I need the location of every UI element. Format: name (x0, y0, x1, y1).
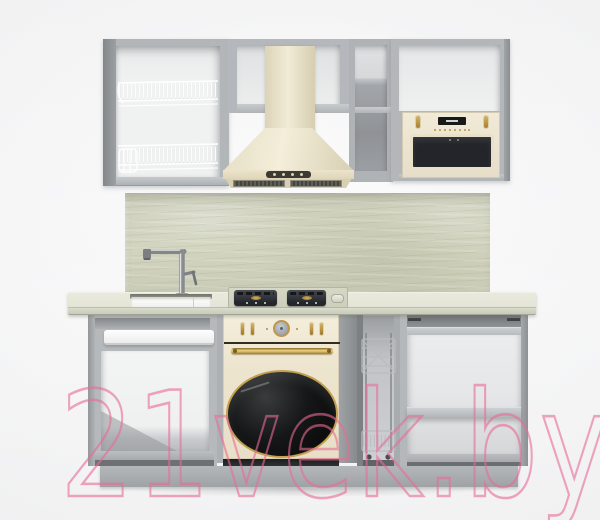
burner-cap (302, 296, 312, 300)
cabinet-top-shadow (95, 318, 210, 329)
grease-filter (290, 180, 342, 187)
microwave-buttons (434, 129, 470, 132)
sink-divider (193, 297, 194, 307)
dish-drying-racks (116, 46, 220, 177)
burner-cap (251, 296, 261, 300)
hood-filter-section (223, 179, 354, 188)
cabinet-side-panel (521, 313, 528, 466)
cabinet-shelf (407, 407, 521, 417)
drawer-rail (408, 318, 421, 321)
gas-burner-right (287, 290, 326, 306)
cabinet-bottom-edge (116, 177, 229, 186)
oven-knob (310, 323, 313, 335)
range-hood (223, 128, 354, 188)
floor-shadow (70, 485, 540, 501)
oven-door (226, 357, 338, 458)
cabinet-bottom-board (95, 451, 214, 460)
burner-grate (237, 292, 274, 295)
microwave-display (438, 117, 466, 125)
burner-detail (297, 302, 299, 304)
oven-knob (251, 323, 254, 335)
oven-indicator (296, 328, 298, 330)
built-in-microwave (402, 112, 500, 178)
sink-front-panel (104, 330, 214, 345)
oven-trim-line (224, 342, 340, 344)
oven-cabinet (217, 313, 357, 478)
cabinet-shelf (355, 107, 393, 113)
cooktop-control (331, 294, 344, 303)
built-in-oven (223, 314, 339, 459)
oven-knob (241, 323, 244, 335)
cabinet-interior (399, 45, 500, 111)
sink-basin (131, 297, 211, 307)
cabinet-bottom-board (407, 454, 521, 462)
base-cabinet-open (400, 313, 528, 466)
burner-grate (290, 292, 323, 295)
oven-indicator (266, 328, 268, 330)
oven-knob (320, 323, 323, 335)
plinth (100, 466, 518, 487)
microwave-knob (484, 116, 488, 128)
cabinet-side-panel (88, 313, 95, 466)
microwave-knob (416, 116, 420, 128)
cabinet-side-panel (339, 313, 357, 463)
cabinet-interior (407, 335, 521, 454)
pull-out-cargo-cabinet (357, 313, 400, 466)
oven-clock (273, 320, 290, 337)
oven-handle (231, 348, 333, 354)
microwave-door-window (410, 134, 494, 170)
gas-cooktop (228, 287, 348, 308)
base-cabinet-sink (88, 313, 217, 466)
burner-detail (246, 302, 248, 304)
hood-control-panel (266, 171, 311, 178)
kitchen-faucet (138, 243, 200, 301)
oven-door-window (226, 370, 338, 458)
grease-filter (233, 180, 285, 187)
hood-canopy (223, 128, 354, 171)
drawer-rail (507, 318, 520, 321)
kitchen-sink (130, 294, 212, 308)
wall-cabinet-left (103, 39, 229, 186)
cabinet-side-panel (103, 39, 116, 186)
cabinet-side-panel (504, 39, 510, 181)
wall-cabinet-narrow-open (349, 39, 393, 182)
product-image-kitchen-set: 21vek.by (0, 0, 600, 520)
drawer-opening (407, 315, 521, 335)
wire-cargo-basket (357, 329, 400, 463)
gas-burner-left (234, 290, 277, 306)
hood-chimney-duct (265, 46, 315, 132)
